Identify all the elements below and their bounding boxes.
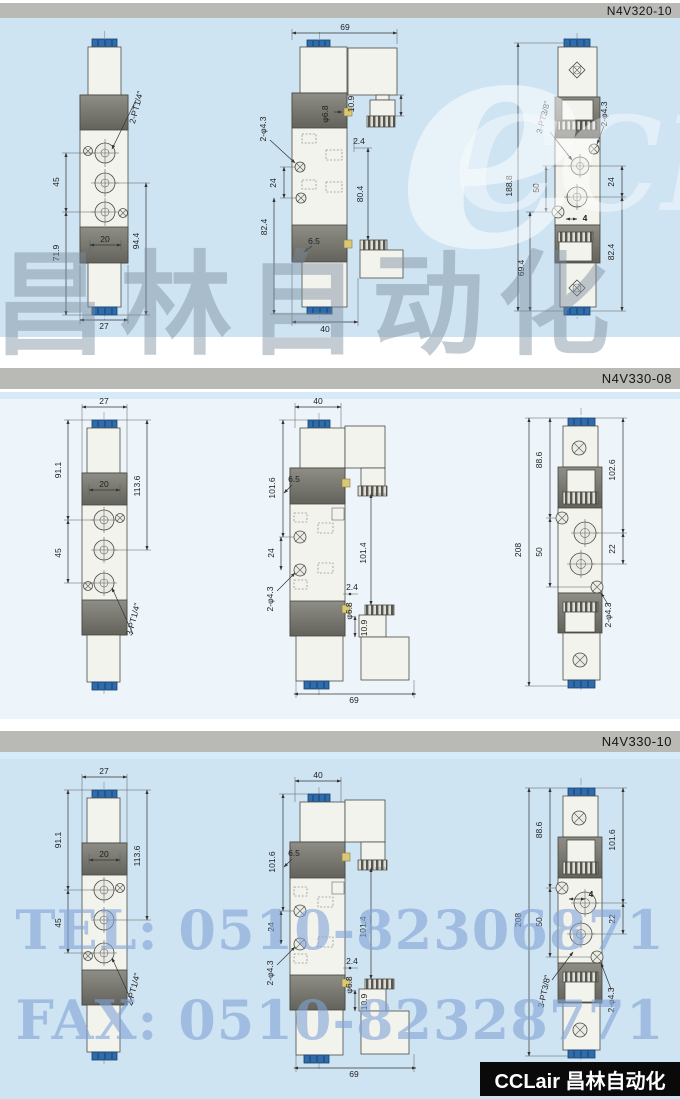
dim-lower: 69.4 <box>516 259 526 276</box>
footer-brand-box: CCLair 昌林自动化 <box>480 1062 680 1096</box>
solenoid-box-top <box>348 48 397 95</box>
dim-upper-left: 91.1 <box>53 461 63 478</box>
back-view-n4v330-08: 208 88.6 50 102.6 22 2-φ4.3 <box>505 400 640 695</box>
dim-pilot: 6.5 <box>288 474 300 484</box>
dim-width: 27 <box>99 398 109 406</box>
mount-holes-label: 2-φ4.3 <box>599 101 609 126</box>
side-view-n4v320-10: 69 10.9 φ6.8 2.4 2-φ4.3 24 82.4 80.4 6.5… <box>258 22 408 337</box>
solenoid-box-top <box>345 426 385 468</box>
thread-connector-bottom <box>365 979 394 989</box>
dim-right-span: 101.4 <box>358 542 368 564</box>
valve-body <box>292 40 403 314</box>
thread-connector-bottom <box>360 240 387 250</box>
dim-port-pitch: 45 <box>51 177 61 187</box>
dim-bottom-width: 40 <box>320 324 330 334</box>
dim-right-span: 101.4 <box>358 916 368 938</box>
front-view-n4v330-08: 27 20 91.1 45 113.6 3-PT1/4" <box>52 398 162 703</box>
dim-offset-4: 4 <box>589 889 594 899</box>
dim-port-pitch: 45 <box>53 918 63 928</box>
dim-left-span: 82.4 <box>259 218 269 235</box>
dim-port-pitch: 24 <box>266 922 276 932</box>
dim-connector: 10.9 <box>359 619 369 636</box>
solenoid-box-top <box>345 800 385 842</box>
dim-top-width: 40 <box>313 770 323 780</box>
thread-connector-top <box>367 116 395 127</box>
solenoid-box-bottom <box>361 1011 409 1054</box>
hole-dia-label: φ6.8 <box>320 105 330 123</box>
dim-right-pitch: 22 <box>607 914 617 924</box>
valve-body <box>82 790 127 1060</box>
solenoid-box-bottom <box>360 250 403 278</box>
model-label-3: N4V330-10 <box>602 734 672 749</box>
dim-upper-left: 91.1 <box>53 831 63 848</box>
footer-brand-label: CCLair 昌林自动化 <box>494 1065 665 1094</box>
dim-inner-width: 20 <box>99 849 109 859</box>
solenoid-box-bottom <box>361 637 409 680</box>
dim-offset: 2.4 <box>346 956 358 966</box>
dim-upper: 88.6 <box>534 451 544 468</box>
dim-total-height: 188.8 <box>504 175 514 197</box>
hole-dia-label: φ6.8 <box>344 602 354 620</box>
dim-port-pitch: 24 <box>268 178 278 188</box>
hole-dia-label: φ6.8 <box>344 976 354 994</box>
dim-pitch: 50 <box>534 547 544 557</box>
dim-right-upper: 102.6 <box>607 459 617 481</box>
model-header-3: N4V330-10 <box>0 731 680 752</box>
dim-right-upper: 101.6 <box>607 829 617 851</box>
dim-inner-width: 20 <box>99 479 109 489</box>
model-label-2: N4V330-08 <box>602 371 672 386</box>
dim-right-pitch: 24 <box>606 177 616 187</box>
valve-body <box>80 39 128 315</box>
dim-right: 113.6 <box>132 845 142 866</box>
valve-body <box>552 39 600 315</box>
mount-holes-label: 2-φ4.3 <box>606 987 616 1012</box>
valve-body <box>290 420 409 689</box>
valve-body <box>556 418 603 688</box>
dim-pitch: 50 <box>531 183 541 193</box>
dim-right-span: 80.4 <box>355 185 365 202</box>
mount-holes-label: 2-φ4.3 <box>603 602 613 627</box>
mount-holes-label: 2-φ4.3 <box>266 586 275 611</box>
dim-port-pitch: 24 <box>266 548 276 558</box>
dim-bottom-width: 69 <box>349 1069 359 1079</box>
port-thread-label: 2-PT1/4" <box>127 90 145 125</box>
model-header-1: N4V320-10 <box>0 3 680 18</box>
dim-upper: 88.6 <box>534 821 544 838</box>
dim-total-height: 208 <box>513 543 523 557</box>
dim-pilot: 6.5 <box>308 236 320 246</box>
back-view-n4v320-10: 188.8 50 69.4 3-PT3/8" 2-φ4.3 24 82.4 4 <box>500 28 635 328</box>
front-view-n4v320-10: 20 45 71.9 94.4 27 2-PT1/4" <box>48 28 163 333</box>
dim-left-span: 101.6 <box>267 477 277 499</box>
dim-port-pitch: 45 <box>53 548 63 558</box>
dim-bottom-width: 69 <box>349 695 359 705</box>
dim-top-width: 69 <box>340 22 350 32</box>
dim-connector: 10.9 <box>359 993 369 1010</box>
port-thread-label: 3-PT3/8" <box>534 100 552 135</box>
valve-body <box>556 788 603 1058</box>
dim-right: 94.4 <box>131 232 141 249</box>
dim-offset: 2.4 <box>353 136 365 146</box>
side-view-n4v330-08: 40 101.6 6.5 24 2-φ4.3 101.4 2.4 φ6.8 10… <box>266 395 426 707</box>
dim-width: 27 <box>99 768 109 776</box>
port-thread-label: 3-PT3/8" <box>536 974 553 1009</box>
thread-connector-top <box>358 860 387 870</box>
dim-offset: 2.4 <box>346 582 358 592</box>
model-label-1: N4V320-10 <box>607 4 672 18</box>
thread-connector-bottom <box>365 605 394 615</box>
mount-holes-label: 2-φ4.3 <box>258 116 268 141</box>
dim-right: 113.6 <box>132 475 142 496</box>
thread-connector-top <box>358 486 387 496</box>
model-header-2: N4V330-08 <box>0 368 680 389</box>
datasheet-page: N4V320-10 N4V330-08 N4V330-10 20 45 <box>0 0 680 1099</box>
dim-offset-4: 4 <box>583 213 588 223</box>
dim-width: 27 <box>99 321 109 331</box>
dim-total-height: 208 <box>513 913 523 927</box>
dim-pilot: 6.5 <box>288 848 300 858</box>
valve-body <box>82 420 127 690</box>
dim-lower-left: 71.9 <box>51 244 61 261</box>
dim-connector: 10.9 <box>346 95 356 112</box>
mount-holes-label: 2-φ4.3 <box>266 960 275 985</box>
dim-top-width: 40 <box>313 396 323 406</box>
dim-left-span: 101.6 <box>267 851 277 873</box>
dim-right-span: 82.4 <box>606 243 616 260</box>
valve-body <box>290 794 409 1063</box>
dim-right-pitch: 22 <box>607 544 617 554</box>
front-view-n4v330-10: 27 20 91.1 45 113.6 2-PT1/4" <box>52 768 162 1073</box>
dim-pitch: 50 <box>534 917 544 927</box>
back-view-n4v330-10: 208 88.6 50 101.6 22 4 3-PT3/8" 2-φ4.3 <box>505 770 640 1065</box>
dim-inner-width: 20 <box>100 234 110 244</box>
side-view-n4v330-10: 40 101.6 6.5 24 2-φ4.3 101.4 2.4 φ6.8 10… <box>266 769 426 1081</box>
